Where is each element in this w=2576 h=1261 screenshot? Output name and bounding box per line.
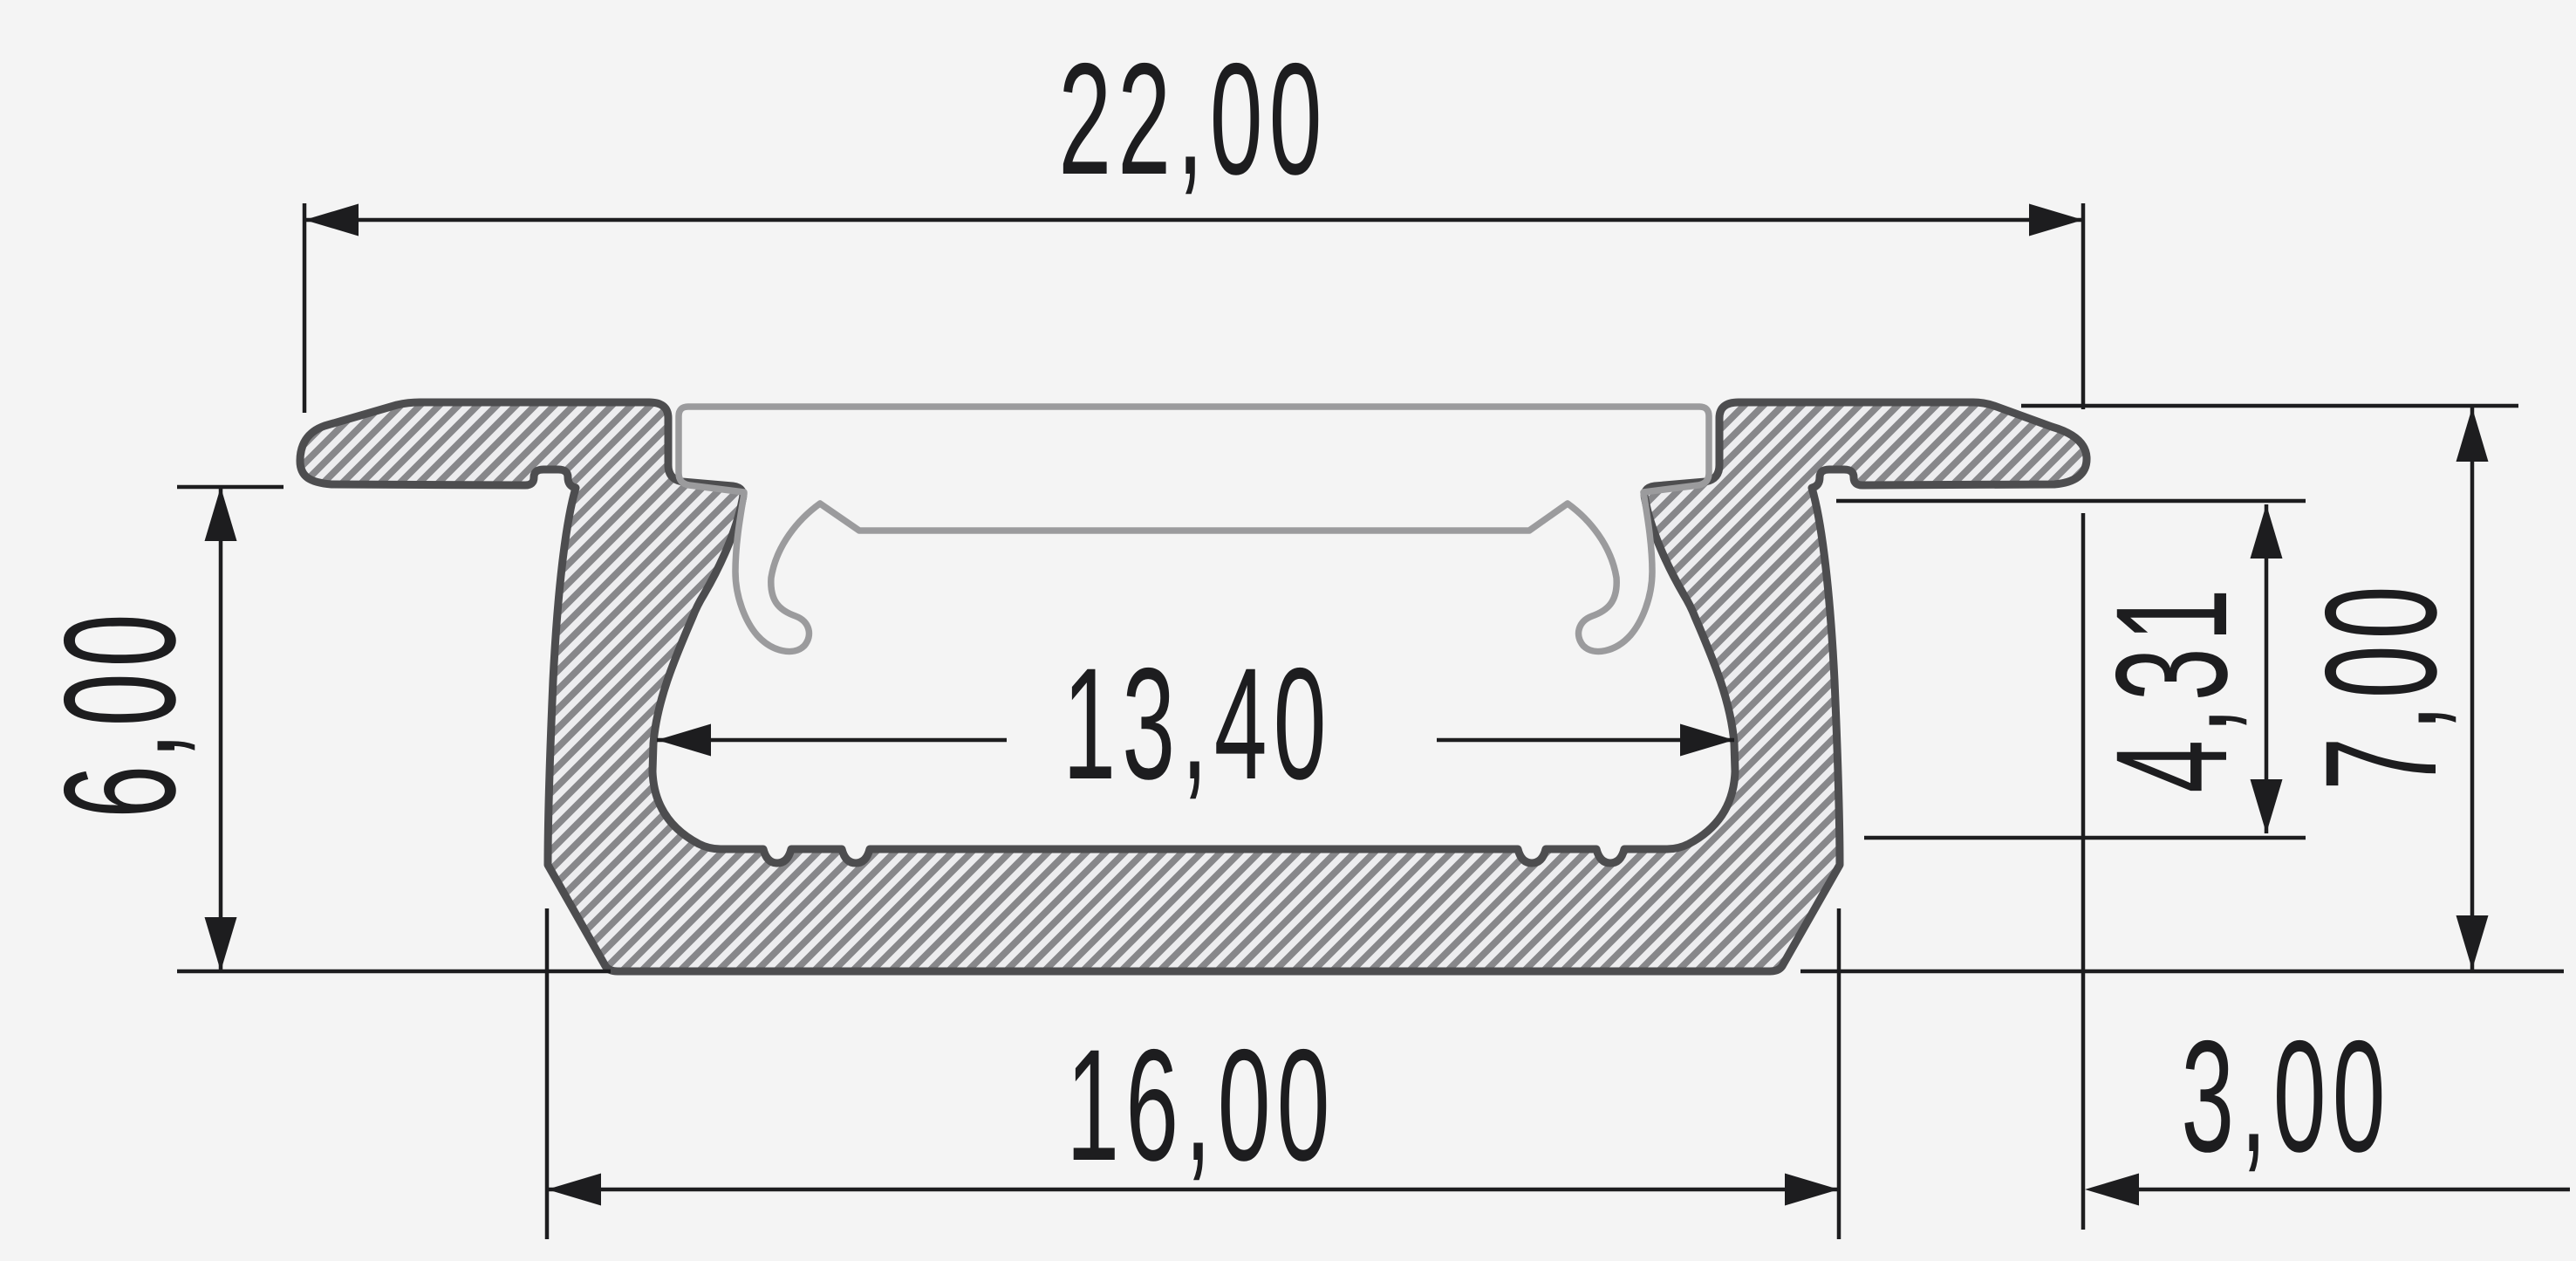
svg-text:3,00: 3,00 — [2181, 1007, 2391, 1185]
svg-text:6,00: 6,00 — [31, 607, 208, 818]
svg-text:4,31: 4,31 — [2082, 582, 2260, 792]
svg-text:7,00: 7,00 — [2292, 579, 2470, 790]
svg-text:16,00: 16,00 — [1066, 1016, 1336, 1194]
svg-text:22,00: 22,00 — [1058, 30, 1328, 208]
svg-text:13,40: 13,40 — [1063, 634, 1332, 812]
